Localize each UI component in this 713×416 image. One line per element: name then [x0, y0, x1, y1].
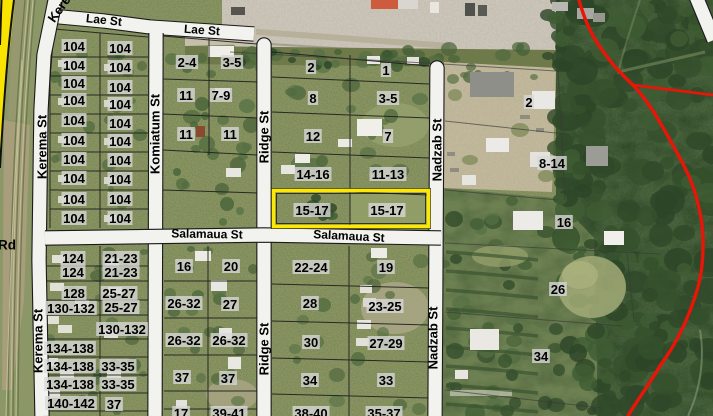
svg-text:35-37: 35-37	[367, 406, 400, 416]
svg-text:25-27: 25-27	[102, 286, 135, 301]
svg-text:130-132: 130-132	[98, 322, 146, 337]
svg-text:8: 8	[309, 91, 316, 106]
svg-text:34: 34	[534, 349, 549, 364]
svg-text:7-9: 7-9	[212, 88, 231, 103]
svg-text:134-138: 134-138	[46, 377, 94, 392]
svg-text:2-4: 2-4	[178, 55, 198, 70]
svg-text:21-23: 21-23	[104, 251, 137, 266]
svg-text:26-32: 26-32	[167, 296, 200, 311]
svg-text:25-27: 25-27	[104, 300, 137, 315]
svg-text:39-41: 39-41	[212, 406, 245, 416]
svg-text:34: 34	[303, 373, 318, 388]
svg-text:128: 128	[63, 286, 85, 301]
svg-text:26-32: 26-32	[212, 333, 245, 348]
svg-text:33-35: 33-35	[101, 359, 134, 374]
svg-text:134-138: 134-138	[46, 341, 94, 356]
svg-text:26: 26	[551, 282, 565, 297]
svg-text:15-17: 15-17	[370, 203, 403, 218]
svg-text:28: 28	[303, 296, 317, 311]
svg-text:33: 33	[379, 373, 393, 388]
svg-text:11: 11	[223, 127, 237, 142]
svg-text:19: 19	[379, 260, 393, 275]
svg-text:140-142: 140-142	[47, 396, 95, 411]
svg-text:15-17: 15-17	[295, 203, 328, 218]
svg-text:27: 27	[223, 297, 237, 312]
svg-text:104: 104	[109, 97, 131, 112]
svg-text:104: 104	[63, 133, 85, 148]
svg-text:16: 16	[177, 259, 191, 274]
svg-text:3-5: 3-5	[223, 55, 242, 70]
svg-text:14-16: 14-16	[296, 167, 329, 182]
svg-text:27-29: 27-29	[369, 336, 402, 351]
svg-text:104: 104	[109, 60, 131, 75]
svg-text:104: 104	[63, 93, 85, 108]
svg-text:104: 104	[109, 80, 131, 95]
svg-text:Ridge St: Ridge St	[257, 110, 272, 163]
svg-text:2: 2	[525, 95, 532, 110]
svg-text:7: 7	[384, 129, 391, 144]
svg-text:30: 30	[304, 335, 318, 350]
svg-text:1: 1	[382, 63, 389, 78]
svg-text:20: 20	[224, 259, 238, 274]
svg-text:26-32: 26-32	[167, 333, 200, 348]
svg-text:104: 104	[109, 172, 131, 187]
svg-text:22-24: 22-24	[294, 260, 328, 275]
svg-text:8-14: 8-14	[539, 156, 566, 171]
svg-text:104: 104	[63, 39, 85, 54]
svg-text:38-40: 38-40	[294, 406, 327, 416]
svg-text:104: 104	[63, 58, 85, 73]
svg-text:Kerema St: Kerema St	[31, 308, 46, 373]
svg-text:21-23: 21-23	[104, 265, 137, 280]
svg-text:11: 11	[179, 88, 193, 103]
svg-text:23-25: 23-25	[368, 299, 401, 314]
svg-text:104: 104	[63, 152, 85, 167]
svg-text:104: 104	[63, 192, 85, 207]
svg-text:104: 104	[109, 211, 131, 226]
svg-text:Rd: Rd	[0, 238, 16, 253]
svg-text:104: 104	[109, 116, 131, 131]
svg-text:33-35: 33-35	[101, 377, 134, 392]
svg-text:16: 16	[557, 215, 571, 230]
svg-text:11-13: 11-13	[372, 167, 405, 182]
svg-text:Komiatum St: Komiatum St	[148, 93, 163, 174]
svg-text:104: 104	[109, 134, 131, 149]
svg-text:104: 104	[109, 192, 131, 207]
svg-text:134-138: 134-138	[46, 359, 94, 374]
svg-text:37: 37	[221, 371, 235, 386]
svg-text:104: 104	[63, 76, 85, 91]
svg-text:11: 11	[179, 127, 193, 142]
svg-text:12: 12	[306, 129, 320, 144]
svg-text:Kerema St: Kerema St	[35, 114, 50, 179]
svg-text:104: 104	[109, 41, 131, 56]
svg-text:37: 37	[175, 370, 189, 385]
svg-text:Salamaua St: Salamaua St	[171, 226, 243, 241]
svg-text:Nadzab St: Nadzab St	[426, 306, 441, 370]
svg-text:124: 124	[62, 251, 84, 266]
svg-text:3-5: 3-5	[379, 91, 398, 106]
svg-text:17: 17	[174, 406, 188, 416]
svg-text:104: 104	[63, 113, 85, 128]
svg-text:130-132: 130-132	[47, 301, 95, 316]
svg-text:104: 104	[109, 153, 131, 168]
svg-text:104: 104	[63, 171, 85, 186]
svg-text:Nadzab St: Nadzab St	[430, 118, 445, 182]
svg-text:Ridge St: Ridge St	[257, 322, 272, 375]
svg-text:124: 124	[62, 265, 84, 280]
svg-text:2: 2	[307, 60, 314, 75]
svg-text:Lae St: Lae St	[184, 22, 221, 38]
svg-text:104: 104	[63, 211, 85, 226]
svg-text:37: 37	[107, 397, 121, 412]
